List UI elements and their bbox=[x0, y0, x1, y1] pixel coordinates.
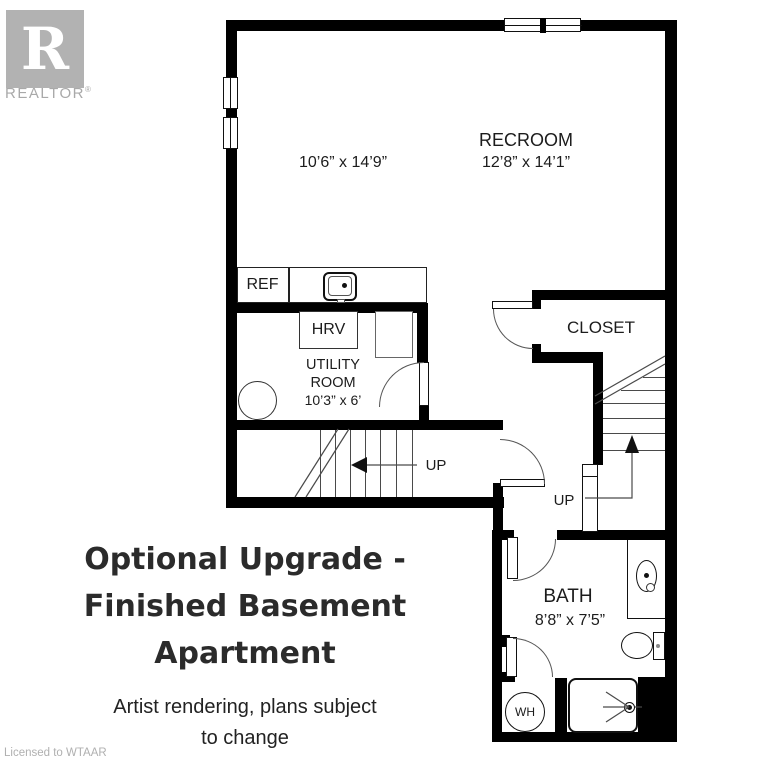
wall-bath-left bbox=[492, 530, 502, 742]
furnace-box bbox=[375, 311, 413, 358]
stair-tread bbox=[603, 403, 665, 404]
window-left-upper-line bbox=[230, 78, 231, 109]
stairs-up-landing-label: UP bbox=[548, 492, 580, 509]
window-left-lower-line bbox=[230, 118, 231, 149]
closet-door-leaf bbox=[492, 301, 533, 309]
water-heater-label: WH bbox=[505, 692, 545, 732]
left-room-dims: 10’6” x 14’9” bbox=[263, 154, 423, 172]
bath-door-arc bbox=[513, 539, 556, 581]
plan-title: Optional Upgrade - Finished Basement Apa… bbox=[20, 536, 470, 677]
wall-wh-divider bbox=[555, 678, 567, 734]
stair-tread bbox=[603, 433, 665, 434]
stair-tread bbox=[621, 390, 665, 391]
stair-break-line bbox=[595, 364, 665, 404]
plan-title-line1: Optional Upgrade - bbox=[20, 536, 470, 583]
registered-trademark-symbol: ® bbox=[85, 85, 92, 94]
shower-head-dot bbox=[627, 705, 632, 710]
stair-tread bbox=[603, 418, 665, 419]
stair-break-line bbox=[295, 429, 338, 497]
license-text: Licensed to WTAAR bbox=[4, 747, 107, 759]
wh-door-arc bbox=[513, 638, 553, 677]
utility-room-dims: 10’3” x 6’ bbox=[273, 392, 393, 408]
utility-room-name-line1: UTILITY bbox=[273, 357, 393, 373]
stair-tread bbox=[603, 450, 665, 451]
bath-sink-drain-dot bbox=[644, 573, 649, 578]
bath-dims: 8’8” x 7’5” bbox=[517, 612, 623, 630]
window-top-mullion bbox=[540, 18, 546, 33]
wall-closet-top bbox=[533, 290, 667, 300]
toilet-bowl-icon bbox=[621, 632, 653, 659]
plan-title-line3: Apartment bbox=[20, 630, 470, 677]
plan-title-line2: Finished Basement bbox=[20, 583, 470, 630]
sump-circle-icon bbox=[238, 381, 277, 420]
wall-stairhall-top bbox=[226, 420, 503, 430]
landing-door-leaf bbox=[582, 476, 598, 532]
stair-tread bbox=[380, 430, 381, 497]
stair-tread bbox=[365, 430, 366, 497]
kitchen-sink-tab bbox=[337, 299, 345, 303]
window-top bbox=[504, 18, 581, 32]
plan-subtitle: Artist rendering, plans subject to chang… bbox=[20, 692, 470, 754]
wall-bath-top-right bbox=[557, 530, 667, 540]
plan-subtitle-line1: Artist rendering, plans subject bbox=[20, 692, 470, 723]
closet-door-arc bbox=[493, 309, 533, 349]
counter-divider-line bbox=[288, 267, 290, 303]
realtor-logo-letter: R bbox=[21, 20, 69, 78]
stair-break-line bbox=[306, 429, 349, 497]
window-left-lower bbox=[223, 117, 238, 149]
kitchen-sink-drain-dot bbox=[342, 283, 347, 288]
stair-tread bbox=[320, 430, 321, 497]
realtor-logo-icon: R bbox=[6, 10, 84, 88]
stair-tread bbox=[396, 430, 397, 497]
wall-top bbox=[226, 20, 677, 31]
bath-name: BATH bbox=[518, 586, 618, 608]
realtor-wordmark: REALTOR® bbox=[5, 85, 92, 102]
stairs-up-hall-label: UP bbox=[420, 457, 452, 474]
stair-tread bbox=[335, 430, 336, 497]
wall-stairs-divider bbox=[593, 352, 603, 465]
kitchen-sink-inner bbox=[328, 276, 352, 296]
closet-name: CLOSET bbox=[541, 318, 661, 338]
toilet-tank-dot bbox=[656, 644, 660, 648]
stair-tread bbox=[350, 430, 351, 497]
utility-room-name-line2: ROOM bbox=[273, 375, 393, 391]
wall-plumbing-chase bbox=[638, 677, 667, 734]
stair-tread bbox=[412, 430, 413, 497]
wall-utility-right bbox=[417, 303, 428, 363]
recroom-dims: 12’8” x 14’1” bbox=[446, 154, 606, 172]
hall-door-arc bbox=[500, 439, 545, 484]
wall-closet-bottom bbox=[532, 352, 598, 363]
wall-right bbox=[665, 20, 677, 742]
bath-sink-faucet bbox=[646, 583, 655, 592]
stair-tread bbox=[643, 377, 665, 378]
window-left-upper bbox=[223, 77, 238, 109]
fridge-label: REF bbox=[237, 267, 288, 303]
wall-stairhall-bottom bbox=[226, 497, 504, 508]
floor-plan-page: R REALTOR® REF HRV bbox=[0, 0, 768, 768]
hrv-label: HRV bbox=[299, 311, 358, 349]
wall-closet-stub-upper bbox=[532, 290, 541, 309]
recroom-name: RECROOM bbox=[446, 130, 606, 151]
realtor-wordmark-text: REALTOR bbox=[5, 85, 85, 102]
